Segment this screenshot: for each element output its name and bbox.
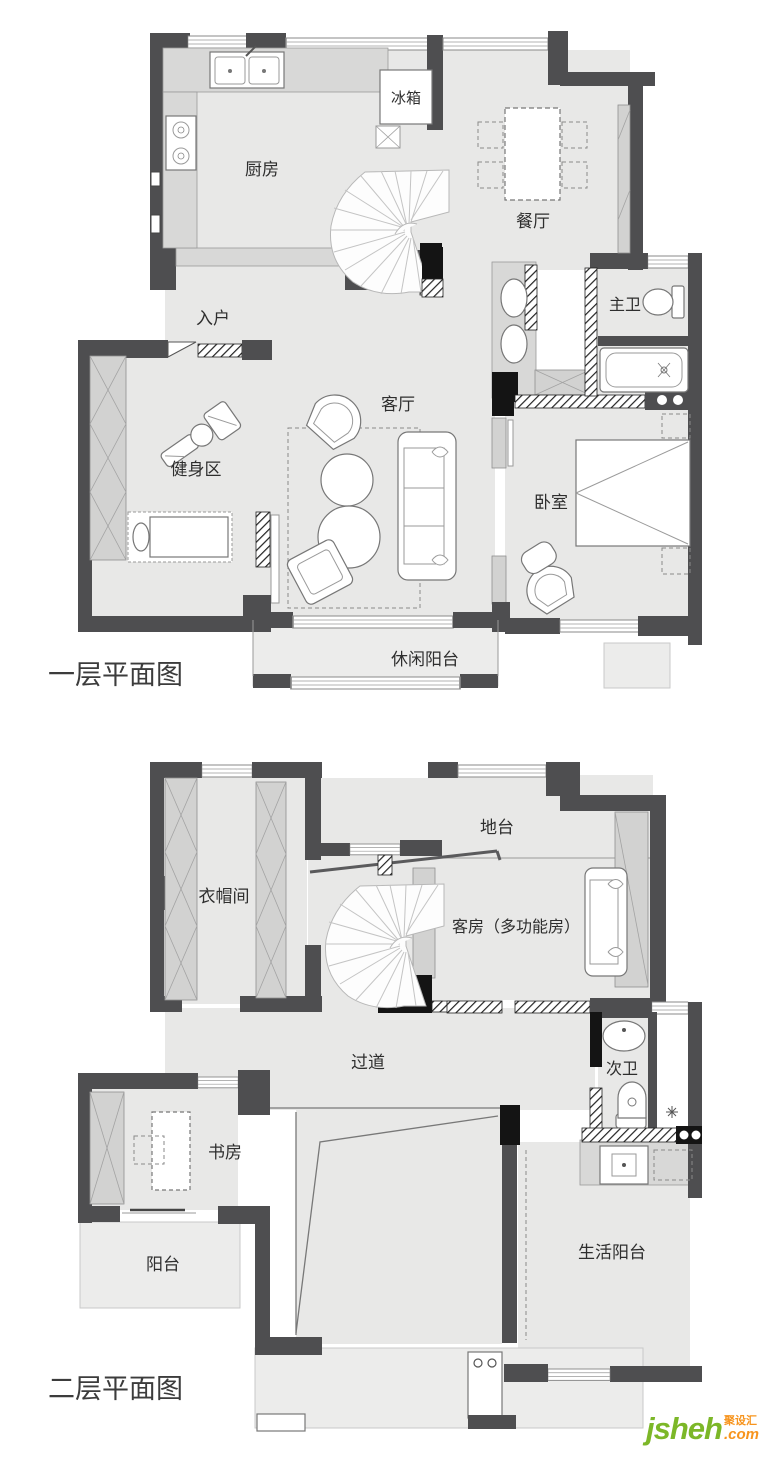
label-fridge: 冰箱 [391,90,421,107]
toilet2-icon [616,1082,646,1128]
sofa-icon [398,432,456,580]
label-gym: 健身区 [171,460,222,479]
label-guest-room: 客房（多功能房） [452,918,580,936]
label-study: 书房 [208,1143,242,1162]
toilet-icon [643,286,684,318]
cooktop-icon [166,116,196,170]
label-living: 客厅 [381,395,415,414]
label-bedroom: 卧室 [534,493,568,512]
label-master-bath: 主卫 [609,296,641,314]
label-corridor: 过道 [351,1053,385,1072]
label-entry: 入户 [196,309,230,328]
floor1-title: 一层平面图 [48,660,183,690]
floor2-title: 二层平面图 [48,1374,183,1404]
guest-sofa-icon [585,868,627,976]
floor-plan-drawing: 厨房 冰箱 餐厅 入户 主卫 客厅 健身区 卧室 休闲阳台 一层平面图 [0,0,780,1465]
label-kitchen: 厨房 [245,160,279,179]
label-cloakroom: 衣帽间 [199,887,250,906]
floor-plan-page: 厨房 冰箱 餐厅 入户 主卫 客厅 健身区 卧室 休闲阳台 一层平面图 [0,0,780,1465]
watermark-tld: .com [724,1427,759,1442]
floor1-plan: 厨房 冰箱 餐厅 入户 主卫 客厅 健身区 卧室 休闲阳台 一层平面图 [48,31,702,690]
kitchen-sink-icon [210,46,284,88]
label-dining: 餐厅 [516,212,550,231]
bathtub-icon [600,348,688,392]
label-platform: 地台 [480,818,514,837]
massage-bed-icon [128,512,232,562]
light-icon [666,1106,678,1118]
floor2-plan: 地台 衣帽间 客房（多功能房） 过道 次卫 书房 阳台 生活阳台 二层平面图 [48,762,702,1431]
label-second-bath: 次卫 [606,1060,638,1078]
label-balcony: 阳台 [146,1255,180,1274]
label-living-balcony: 生活阳台 [578,1243,646,1262]
label-leisure-balcony: 休闲阳台 [391,650,459,669]
dining-cabinet-icon [618,105,630,253]
watermark-logo: jsheh 聚设汇 .com [646,1413,759,1444]
gym-wardrobe-icon [90,356,126,560]
watermark-brand: jsheh [646,1413,722,1444]
